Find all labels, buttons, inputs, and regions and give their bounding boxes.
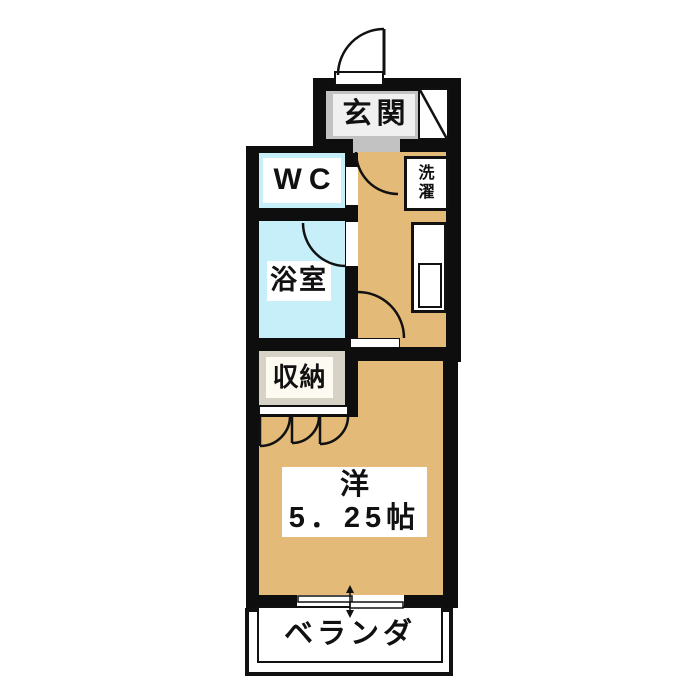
laundry-space: 洗 濯 [404, 156, 449, 211]
kitchen-sink [418, 263, 442, 308]
bathroom-label: 浴室 [270, 265, 328, 296]
genkan-label: 玄関 [342, 98, 410, 131]
front-door-arc [338, 29, 384, 75]
laundry-label-1: 洗 [418, 165, 434, 183]
floorplan: ベランダ 洗 濯 玄関 WC 浴室 収納 洋 5．25帖 [0, 0, 700, 700]
bathroom-label-box: 浴室 [267, 261, 331, 301]
main-room-floor-upper [358, 361, 443, 417]
front-door-threshold [334, 71, 384, 86]
shoe-cabinet [418, 88, 449, 140]
closet-label: 収納 [272, 363, 326, 393]
wc-label-box: WC [263, 158, 341, 203]
genkan-step [353, 139, 400, 153]
main-room-label-box: 洋 5．25帖 [282, 467, 427, 537]
veranda-label: ベランダ [284, 618, 416, 651]
laundry-label-2: 濯 [418, 184, 434, 202]
veranda-inner: ベランダ [257, 606, 443, 663]
main-room-door-threshold [350, 338, 400, 348]
wc-label: WC [274, 163, 338, 198]
wc-door-opening [346, 167, 358, 205]
closet-label-box: 収納 [266, 357, 333, 398]
bathroom-door-opening [346, 222, 358, 266]
genkan-label-box: 玄関 [333, 94, 415, 136]
main-room-type-label: 洋 [340, 469, 369, 502]
closet-door-threshold [259, 406, 348, 415]
main-room-size-label: 5．25帖 [289, 502, 420, 535]
